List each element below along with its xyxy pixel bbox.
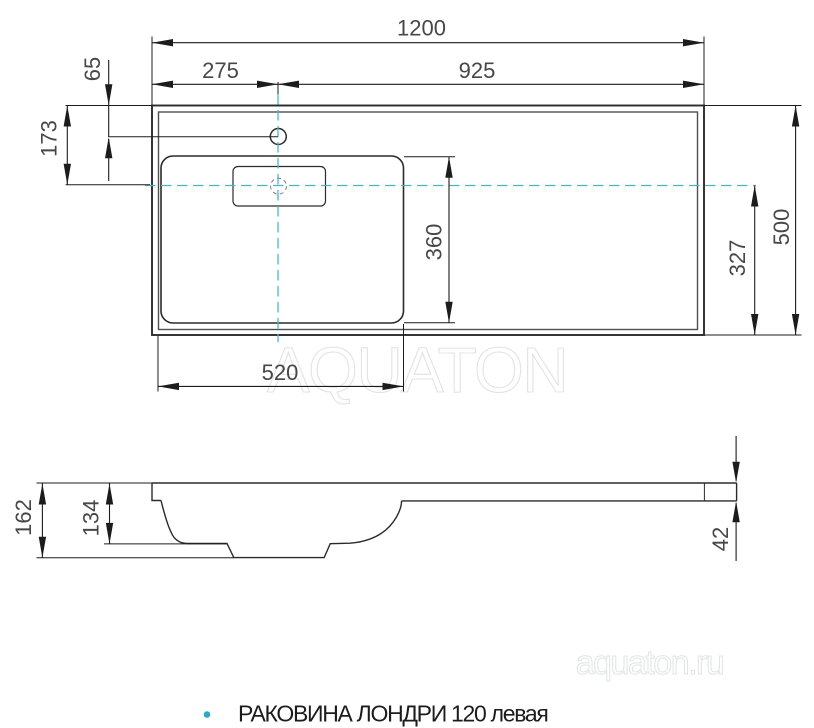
svg-text:65: 65 bbox=[80, 57, 105, 81]
svg-text:327: 327 bbox=[725, 240, 750, 277]
svg-text:162: 162 bbox=[11, 499, 36, 536]
svg-text:520: 520 bbox=[262, 360, 299, 385]
svg-text:AQUATON: AQUATON bbox=[267, 334, 567, 406]
svg-text:aquaton.ru: aquaton.ru bbox=[576, 644, 724, 682]
svg-text:925: 925 bbox=[459, 58, 496, 83]
svg-text:275: 275 bbox=[202, 58, 239, 83]
svg-text:173: 173 bbox=[37, 120, 62, 157]
svg-text:1200: 1200 bbox=[397, 16, 446, 41]
svg-text:500: 500 bbox=[769, 209, 794, 246]
svg-text:42: 42 bbox=[708, 527, 733, 551]
svg-text:134: 134 bbox=[79, 500, 104, 537]
svg-text:РАКОВИНА ЛОНДРИ 120 левая: РАКОВИНА ЛОНДРИ 120 левая bbox=[238, 701, 548, 727]
svg-text:360: 360 bbox=[422, 224, 447, 261]
